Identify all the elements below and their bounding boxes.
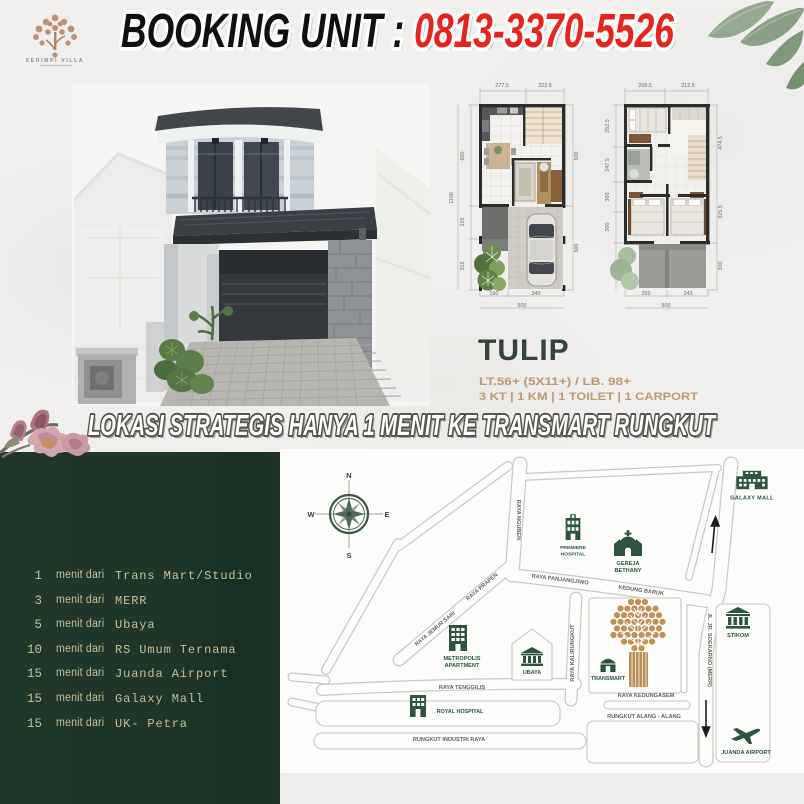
svg-text:1100: 1100	[449, 192, 455, 204]
svg-text:ROYAL HOSPITAL: ROYAL HOSPITAL	[437, 709, 484, 715]
svg-text:GALAXY MALL: GALAXY MALL	[730, 495, 774, 501]
svg-text:RAYA TENGGILIS: RAYA TENGGILIS	[439, 685, 486, 691]
svg-text:160: 160	[490, 291, 499, 297]
svg-text:277.5: 277.5	[495, 83, 509, 89]
svg-text:APARTMENT: APARTMENT	[445, 663, 480, 669]
svg-text:N: N	[346, 471, 351, 480]
svg-text:500: 500	[518, 303, 527, 309]
svg-text:PREMIERE: PREMIERE	[560, 545, 587, 551]
svg-text:212.5: 212.5	[681, 83, 695, 89]
svg-text:BOOKING UNIT : 0813-3370-5526: BOOKING UNIT : 0813-3370-5526	[121, 5, 674, 58]
svg-text:300: 300	[605, 223, 611, 232]
svg-text:METROPOLIS: METROPOLIS	[444, 656, 481, 662]
svg-text:500: 500	[574, 244, 580, 253]
svg-text:RAYA KALIRUNGKUT: RAYA KALIRUNGKUT	[570, 624, 576, 682]
svg-text:E: E	[384, 510, 389, 519]
svg-text:222.5: 222.5	[538, 83, 552, 89]
svg-text:RUNGKUT ALANG - ALANG: RUNGKUT ALANG - ALANG	[607, 714, 681, 720]
svg-text:500: 500	[662, 303, 671, 309]
svg-text:TRANSMART: TRANSMART	[591, 676, 626, 682]
svg-text:JL. JR. SOEKARNO (MERR): JL. JR. SOEKARNO (MERR)	[706, 613, 712, 687]
svg-text:GEREJA: GEREJA	[616, 561, 639, 567]
svg-text:208.5: 208.5	[638, 83, 652, 89]
svg-text:HOSPITAL: HOSPITAL	[561, 552, 586, 558]
svg-text:315: 315	[460, 262, 466, 271]
svg-text:RUNGKUT INDUSTRI RAYA: RUNGKUT INDUSTRI RAYA	[413, 737, 485, 743]
svg-text:259: 259	[642, 291, 651, 297]
svg-text:300: 300	[605, 193, 611, 202]
svg-text:UBAYA: UBAYA	[523, 670, 541, 676]
svg-text:243: 243	[684, 291, 693, 297]
svg-text:247.5: 247.5	[605, 158, 611, 172]
svg-text:300: 300	[718, 262, 724, 271]
svg-text:S: S	[346, 551, 351, 560]
svg-text:BETHANY: BETHANY	[614, 568, 641, 574]
svg-text:252.5: 252.5	[605, 119, 611, 133]
svg-text:600: 600	[460, 152, 466, 161]
svg-text:JUANDA AIRPORT: JUANDA AIRPORT	[721, 750, 771, 756]
svg-text:340: 340	[532, 291, 541, 297]
svg-text:600: 600	[574, 152, 580, 161]
svg-text:W: W	[307, 510, 315, 519]
svg-text:LOKASI STRATEGIS HANYA 1 MENIT: LOKASI STRATEGIS HANYA 1 MENIT KE TRANSM…	[88, 410, 717, 442]
svg-text:LT.56+ (5X11+) / LB. 98+: LT.56+ (5X11+) / LB. 98+	[479, 376, 631, 388]
svg-text:155: 155	[460, 218, 466, 227]
svg-text:474.5: 474.5	[718, 136, 724, 150]
svg-text:RAYA KEDUNGASEM: RAYA KEDUNGASEM	[618, 693, 675, 699]
svg-text:RAYA NGUBEN: RAYA NGUBEN	[515, 500, 521, 540]
svg-text:325.5: 325.5	[718, 205, 724, 219]
svg-text:STIKOM: STIKOM	[727, 633, 749, 639]
